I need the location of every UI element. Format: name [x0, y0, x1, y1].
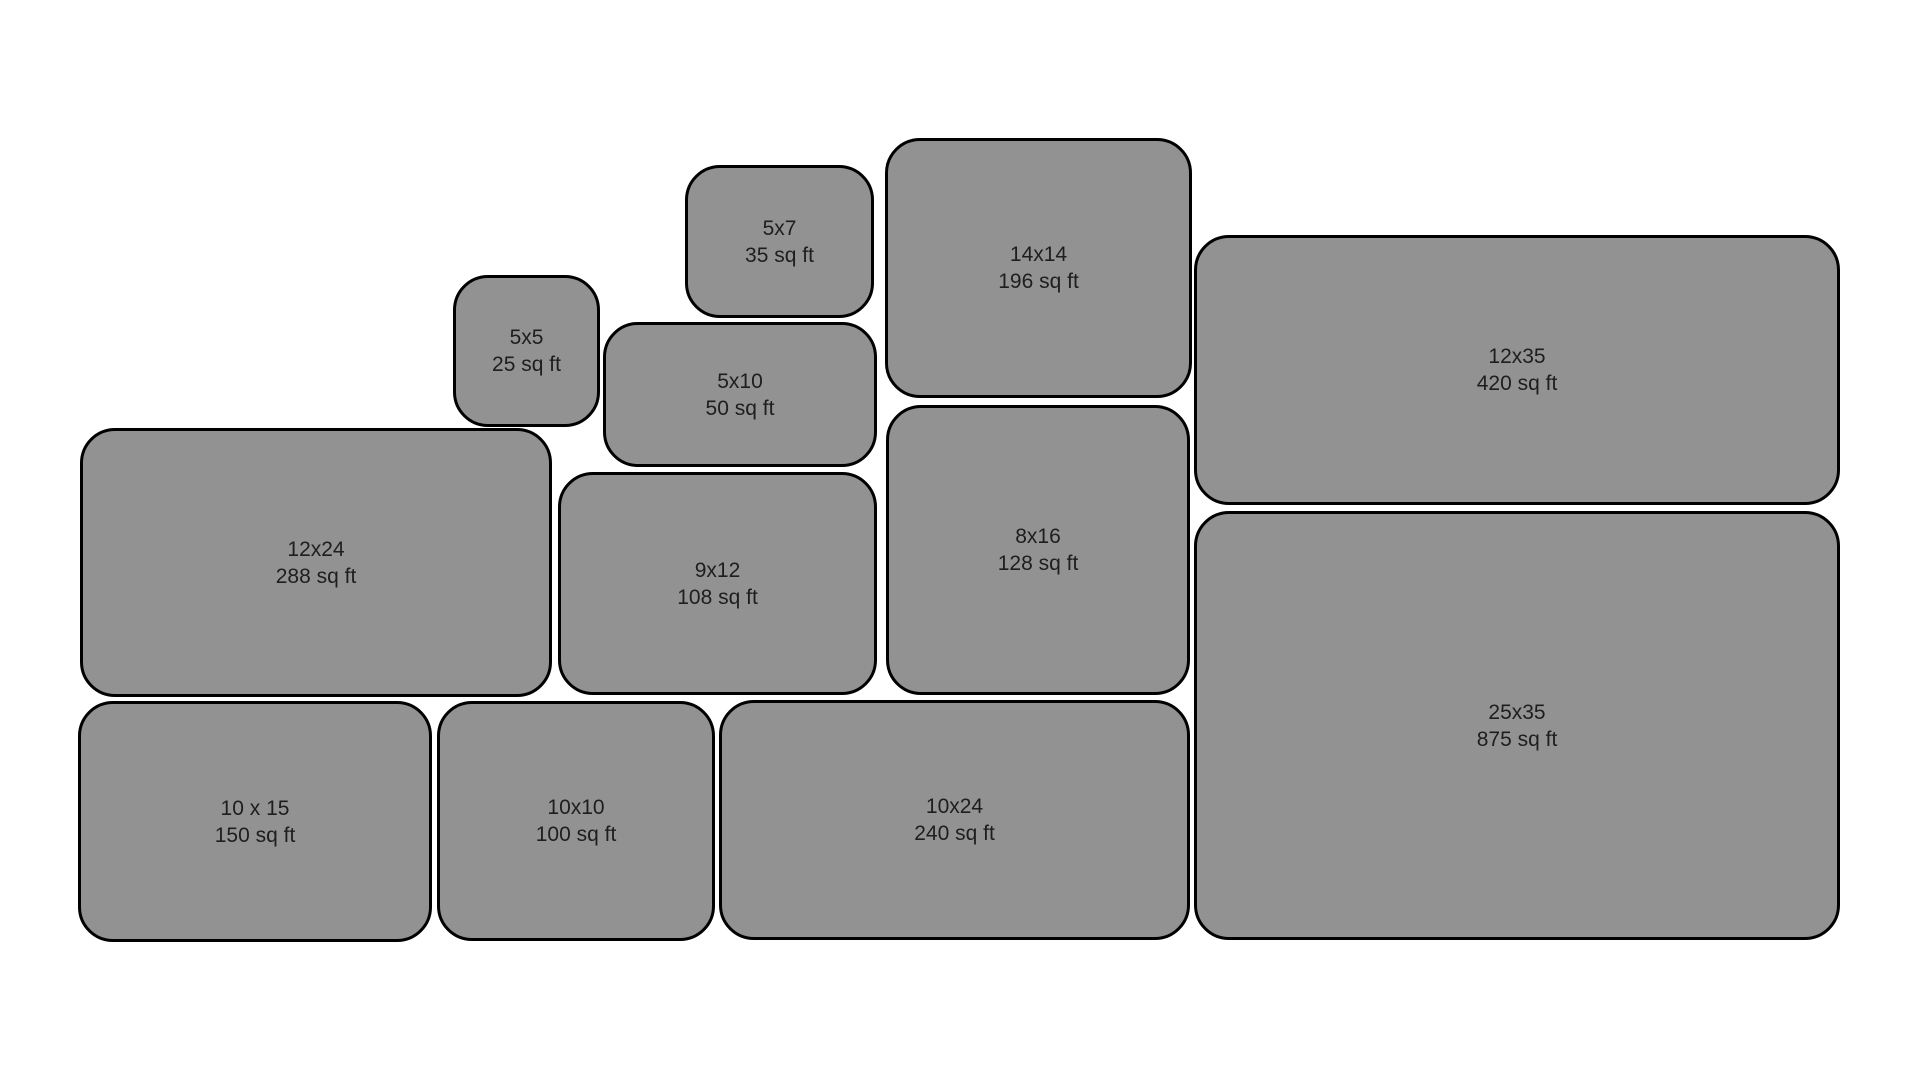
unit-size-label: 12x24 [287, 536, 344, 563]
unit-area-label: 108 sq ft [677, 584, 758, 611]
unit-area-label: 25 sq ft [492, 351, 561, 378]
unit-area-label: 420 sq ft [1477, 370, 1558, 397]
unit-box-25x35: 25x35 875 sq ft [1194, 511, 1840, 940]
unit-size-label: 25x35 [1488, 699, 1545, 726]
unit-box-10x24: 10x24 240 sq ft [719, 700, 1190, 940]
unit-area-label: 35 sq ft [745, 242, 814, 269]
unit-box-14x14: 14x14 196 sq ft [885, 138, 1192, 398]
unit-size-label: 5x5 [510, 324, 544, 351]
unit-size-label: 10 x 15 [221, 795, 290, 822]
unit-box-9x12: 9x12 108 sq ft [558, 472, 877, 695]
unit-box-5x7: 5x7 35 sq ft [685, 165, 874, 318]
unit-box-5x5: 5x5 25 sq ft [453, 275, 600, 427]
unit-area-label: 240 sq ft [914, 820, 995, 847]
unit-size-label: 9x12 [695, 557, 741, 584]
unit-size-label: 14x14 [1010, 241, 1067, 268]
storage-unit-size-diagram: 5x7 35 sq ft 14x14 196 sq ft 12x35 420 s… [0, 0, 1920, 1080]
unit-box-12x35: 12x35 420 sq ft [1194, 235, 1840, 505]
unit-box-10x10: 10x10 100 sq ft [437, 701, 715, 941]
unit-box-8x16: 8x16 128 sq ft [886, 405, 1190, 695]
unit-box-12x24: 12x24 288 sq ft [80, 428, 552, 697]
unit-area-label: 288 sq ft [276, 563, 357, 590]
unit-area-label: 196 sq ft [998, 268, 1079, 295]
unit-area-label: 100 sq ft [536, 821, 617, 848]
unit-area-label: 875 sq ft [1477, 726, 1558, 753]
unit-area-label: 150 sq ft [215, 822, 296, 849]
unit-size-label: 10x24 [926, 793, 983, 820]
unit-box-10x15: 10 x 15 150 sq ft [78, 701, 432, 942]
unit-size-label: 12x35 [1488, 343, 1545, 370]
unit-size-label: 5x7 [763, 215, 797, 242]
unit-area-label: 128 sq ft [998, 550, 1079, 577]
unit-size-label: 5x10 [717, 368, 763, 395]
unit-box-5x10: 5x10 50 sq ft [603, 322, 877, 467]
unit-area-label: 50 sq ft [706, 395, 775, 422]
unit-size-label: 8x16 [1015, 523, 1061, 550]
unit-size-label: 10x10 [547, 794, 604, 821]
